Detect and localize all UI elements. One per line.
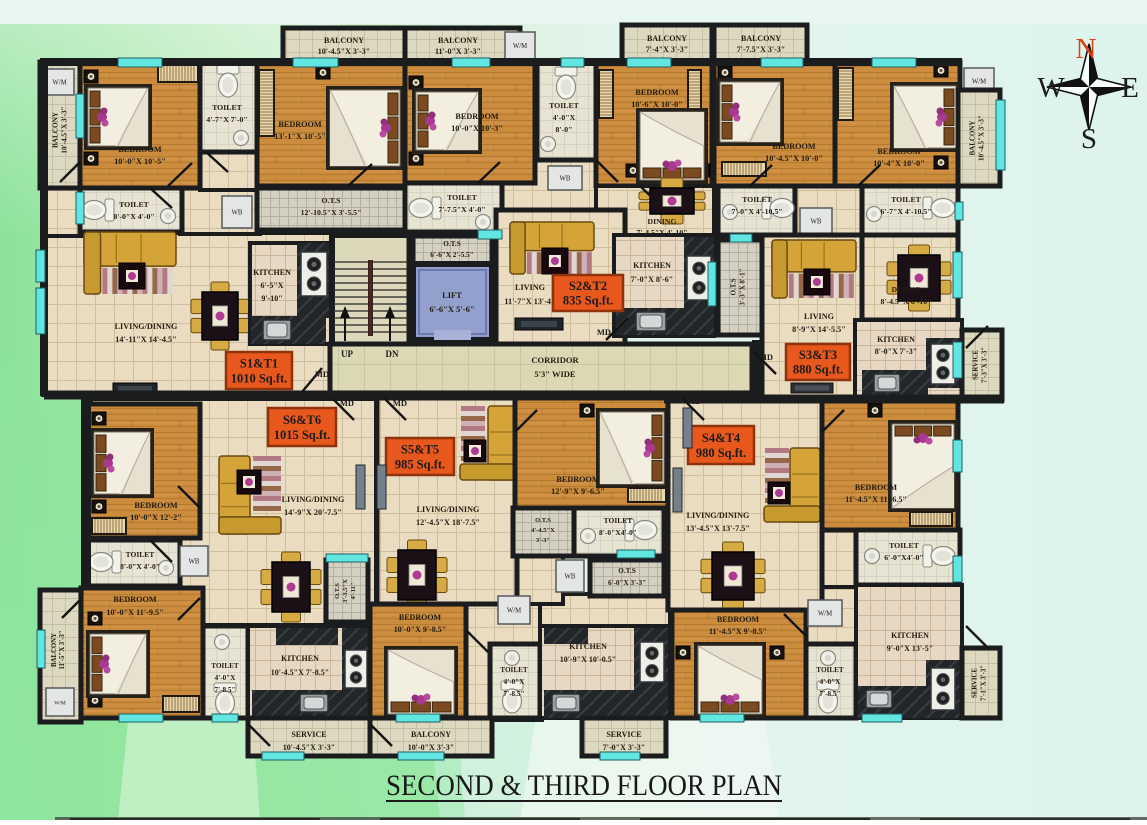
- svg-text:BEDROOM: BEDROOM: [118, 145, 161, 154]
- svg-text:6'-7"X 4'-10.5": 6'-7"X 4'-10.5": [880, 207, 931, 216]
- svg-text:8'-4.5"X 6'-10": 8'-4.5"X 6'-10": [880, 297, 931, 306]
- svg-text:KITCHEN: KITCHEN: [633, 261, 671, 270]
- svg-text:BEDROOM: BEDROOM: [717, 615, 760, 624]
- svg-text:BEDROOM: BEDROOM: [772, 142, 815, 151]
- svg-text:10'-4.5"X 3'-3": 10'-4.5"X 3'-3": [978, 115, 986, 161]
- svg-text:DINING: DINING: [891, 285, 920, 294]
- svg-text:S3&T3: S3&T3: [799, 348, 837, 362]
- svg-text:O.T.S: O.T.S: [322, 196, 341, 205]
- svg-text:TOILET: TOILET: [212, 103, 243, 112]
- svg-text:MD: MD: [597, 327, 611, 337]
- svg-text:W/M: W/M: [818, 611, 832, 618]
- svg-text:WB: WB: [232, 210, 243, 217]
- svg-text:W/M: W/M: [513, 43, 527, 50]
- svg-text:TOILET: TOILET: [211, 662, 239, 670]
- svg-text:6'-5"X: 6'-5"X: [260, 281, 283, 290]
- svg-text:MD: MD: [315, 369, 329, 379]
- svg-text:TOILET: TOILET: [889, 541, 920, 550]
- svg-text:10'-4.5"X 10'-0": 10'-4.5"X 10'-0": [765, 154, 823, 163]
- svg-text:7'-7.5"X 4'-0": 7'-7.5"X 4'-0": [438, 205, 485, 214]
- svg-text:TOILET: TOILET: [816, 666, 844, 674]
- svg-text:10'-4.5"X 3'-3": 10'-4.5"X 3'-3": [61, 106, 69, 153]
- svg-text:LIVING: LIVING: [804, 312, 835, 321]
- svg-text:6'-0"X 3'-3": 6'-0"X 3'-3": [608, 579, 646, 587]
- svg-text:7'-0"X 3'-3": 7'-0"X 3'-3": [603, 743, 645, 752]
- svg-text:W/M: W/M: [52, 80, 66, 87]
- svg-text:TOILET: TOILET: [742, 195, 773, 204]
- svg-text:N: N: [1076, 33, 1097, 65]
- svg-text:LIVING: LIVING: [515, 283, 546, 292]
- svg-text:SECOND & THIRD FLOOR PLAN: SECOND & THIRD FLOOR PLAN: [386, 769, 782, 802]
- svg-text:LIVING/DINING: LIVING/DINING: [115, 322, 178, 331]
- svg-text:O.T.S: O.T.S: [730, 278, 738, 295]
- svg-text:CORRIDOR: CORRIDOR: [531, 355, 579, 365]
- svg-text:4'-0"X: 4'-0"X: [820, 678, 842, 686]
- svg-text:BALCONY: BALCONY: [411, 730, 451, 739]
- svg-text:BEDROOM: BEDROOM: [134, 501, 177, 510]
- svg-text:10'-4.5"X 7'-8.5": 10'-4.5"X 7'-8.5": [271, 668, 329, 677]
- svg-text:8'-0": 8'-0": [556, 125, 573, 134]
- svg-text:1010 Sq.ft.: 1010 Sq.ft.: [231, 371, 288, 385]
- svg-text:KITCHEN: KITCHEN: [891, 631, 929, 640]
- svg-text:S4&T4: S4&T4: [702, 431, 741, 445]
- svg-text:11'-4.5"X 9'-8.5": 11'-4.5"X 9'-8.5": [709, 627, 767, 636]
- svg-text:10'-4.5"X 3'-3": 10'-4.5"X 3'-3": [283, 743, 335, 752]
- svg-text:8'-9"X 14'-5.5": 8'-9"X 14'-5.5": [792, 325, 846, 334]
- svg-text:SERVICE: SERVICE: [972, 668, 979, 698]
- svg-text:13'-4.5"X 13'-7.5": 13'-4.5"X 13'-7.5": [686, 524, 750, 533]
- svg-text:S2&T2: S2&T2: [569, 279, 607, 293]
- svg-text:MD: MD: [340, 398, 354, 408]
- svg-text:BALCONY: BALCONY: [52, 111, 60, 148]
- svg-text:7'-8.5": 7'-8.5": [820, 690, 841, 698]
- svg-text:13'-1"X 10'-5": 13'-1"X 10'-5": [274, 132, 326, 141]
- svg-text:TOILET: TOILET: [500, 666, 528, 674]
- svg-text:SERVICE: SERVICE: [606, 730, 641, 739]
- svg-text:8'-0"X 4'-0": 8'-0"X 4'-0": [113, 212, 154, 221]
- svg-text:7'-1"X 3'-3": 7'-1"X 3'-3": [981, 665, 988, 701]
- svg-text:4'-0"X: 4'-0"X: [504, 678, 526, 686]
- svg-text:6'-0"X4'-0": 6'-0"X4'-0": [884, 553, 923, 562]
- svg-text:11'-5"X 3'-3": 11'-5"X 3'-3": [59, 630, 66, 669]
- svg-text:8'-0"X 7'-3": 8'-0"X 7'-3": [875, 347, 917, 356]
- svg-text:7'-0"X 4'-10.5": 7'-0"X 4'-10.5": [731, 207, 782, 216]
- svg-text:BALCONY: BALCONY: [51, 633, 58, 667]
- svg-text:W/M: W/M: [972, 79, 986, 86]
- svg-text:O.T.S: O.T.S: [334, 583, 341, 599]
- svg-text:7'-4"X 3'-3": 7'-4"X 3'-3": [646, 45, 688, 54]
- svg-text:BALCONY: BALCONY: [741, 34, 781, 43]
- svg-text:8'-0"X4'-0": 8'-0"X4'-0": [599, 528, 637, 537]
- svg-text:10'-4"X 10'-0": 10'-4"X 10'-0": [873, 159, 925, 168]
- svg-text:S5&T5: S5&T5: [401, 443, 439, 457]
- svg-text:KITCHEN: KITCHEN: [253, 268, 291, 277]
- svg-text:KITCHEN: KITCHEN: [877, 335, 915, 344]
- svg-text:5'3" WIDE: 5'3" WIDE: [534, 369, 575, 379]
- svg-text:LIFT: LIFT: [442, 290, 462, 300]
- svg-text:BEDROOM: BEDROOM: [278, 120, 321, 129]
- svg-text:11'-4.5"X 11'-6.5": 11'-4.5"X 11'-6.5": [845, 495, 907, 504]
- svg-text:BEDROOM: BEDROOM: [399, 613, 442, 622]
- svg-text:W/M: W/M: [54, 701, 66, 707]
- svg-text:BEDROOM: BEDROOM: [455, 112, 498, 121]
- svg-text:10'-0"X 9'-8.5": 10'-0"X 9'-8.5": [394, 625, 446, 634]
- svg-text:BEDROOM: BEDROOM: [113, 595, 156, 604]
- svg-text:14'-11"X 14'-4.5": 14'-11"X 14'-4.5": [115, 335, 176, 344]
- svg-text:WB: WB: [565, 574, 576, 581]
- svg-text:10'-0"X 11'-9.5": 10'-0"X 11'-9.5": [106, 608, 163, 617]
- svg-text:10'-0"X 10'-3": 10'-0"X 10'-3": [451, 124, 503, 133]
- svg-text:BALCONY: BALCONY: [324, 36, 364, 45]
- svg-text:3'-3": 3'-3": [536, 537, 550, 544]
- svg-text:11'-0"X 3'-3": 11'-0"X 3'-3": [435, 47, 481, 56]
- svg-text:880 Sq.ft.: 880 Sq.ft.: [793, 363, 843, 377]
- svg-text:TOILET: TOILET: [126, 550, 155, 559]
- svg-text:SERVICE: SERVICE: [973, 350, 980, 380]
- svg-text:4'-0"X: 4'-0"X: [553, 113, 576, 122]
- svg-text:10'-0"X 3'-3": 10'-0"X 3'-3": [408, 743, 454, 752]
- svg-text:6'-6"X 2'-5.5": 6'-6"X 2'-5.5": [430, 251, 474, 259]
- svg-text:1015 Sq.ft.: 1015 Sq.ft.: [274, 428, 331, 442]
- svg-text:O.T.S: O.T.S: [443, 240, 460, 248]
- svg-text:LIVING/DINING: LIVING/DINING: [282, 495, 345, 504]
- svg-text:MD: MD: [393, 398, 407, 408]
- svg-text:12'-10.5"X 3'-5.5": 12'-10.5"X 3'-5.5": [301, 208, 362, 217]
- svg-text:O.T.S: O.T.S: [618, 567, 635, 575]
- svg-text:TOILET: TOILET: [549, 101, 580, 110]
- svg-text:980 Sq.ft.: 980 Sq.ft.: [696, 446, 746, 460]
- svg-text:E: E: [1121, 72, 1139, 104]
- svg-text:KITCHEN: KITCHEN: [281, 654, 319, 663]
- svg-text:14'-9"X 20'-7.5": 14'-9"X 20'-7.5": [284, 508, 342, 517]
- svg-text:10'-6"X 10'-0": 10'-6"X 10'-0": [631, 100, 683, 109]
- svg-text:W: W: [1037, 72, 1065, 104]
- svg-text:7'-7.5"X 3'-3": 7'-7.5"X 3'-3": [737, 45, 785, 54]
- svg-text:985 Sq.ft.: 985 Sq.ft.: [395, 457, 445, 471]
- svg-text:12'-9"X 9'-6.5": 12'-9"X 9'-6.5": [551, 487, 605, 496]
- svg-text:TOILET: TOILET: [119, 200, 150, 209]
- svg-text:BEDROOM: BEDROOM: [877, 147, 920, 156]
- svg-text:DN: DN: [386, 349, 399, 359]
- svg-text:10'-0"X 10'-5": 10'-0"X 10'-5": [114, 157, 166, 166]
- svg-text:MD: MD: [49, 388, 63, 398]
- svg-text:7'-8.5": 7'-8.5": [215, 686, 236, 694]
- svg-text:MD: MD: [687, 396, 701, 406]
- svg-text:3'-3"X 8'-1": 3'-3"X 8'-1": [739, 268, 747, 305]
- svg-text:10'-4.5"X 3'-3": 10'-4.5"X 3'-3": [318, 47, 370, 56]
- svg-text:9'-0"X 13'-5": 9'-0"X 13'-5": [887, 644, 933, 653]
- svg-text:4'-0"X: 4'-0"X: [215, 674, 237, 682]
- svg-text:BALCONY: BALCONY: [438, 36, 478, 45]
- svg-text:835 Sq.ft.: 835 Sq.ft.: [563, 294, 613, 308]
- svg-text:BALCONY: BALCONY: [647, 34, 687, 43]
- svg-text:BEDROOM: BEDROOM: [556, 475, 599, 484]
- svg-text:W/M: W/M: [507, 608, 521, 615]
- svg-text:10'-0"X 12'-2": 10'-0"X 12'-2": [130, 513, 182, 522]
- svg-text:7'-8.5": 7'-8.5": [504, 690, 525, 698]
- svg-text:S6&T6: S6&T6: [283, 413, 321, 427]
- svg-text:12'-4.5"X 18'-7.5": 12'-4.5"X 18'-7.5": [416, 518, 480, 527]
- svg-text:LIVING/DINING: LIVING/DINING: [687, 511, 750, 520]
- svg-text:10'-9"X 10'-0.5": 10'-9"X 10'-0.5": [560, 655, 616, 664]
- svg-text:O.T.S: O.T.S: [535, 517, 551, 524]
- svg-text:UP: UP: [341, 349, 353, 359]
- svg-text:BEDROOM: BEDROOM: [855, 483, 898, 492]
- svg-text:4'-11": 4'-11": [350, 583, 357, 600]
- svg-text:BALCONY: BALCONY: [969, 120, 977, 155]
- svg-text:WB: WB: [189, 559, 200, 566]
- svg-text:DINING: DINING: [647, 217, 676, 226]
- svg-text:3'-3.5"X: 3'-3.5"X: [342, 579, 349, 603]
- svg-text:KITCHEN: KITCHEN: [569, 642, 607, 651]
- svg-text:S1&T1: S1&T1: [240, 357, 278, 371]
- svg-text:BEDROOM: BEDROOM: [635, 88, 678, 97]
- svg-text:4'-7"X 7'-0": 4'-7"X 7'-0": [206, 115, 247, 124]
- svg-text:WB: WB: [560, 176, 571, 183]
- svg-text:4'-4.5"X: 4'-4.5"X: [531, 527, 555, 534]
- svg-text:WB: WB: [811, 219, 822, 226]
- svg-text:6'-6"X 5'-6": 6'-6"X 5'-6": [429, 304, 474, 314]
- svg-text:TOILET: TOILET: [891, 195, 922, 204]
- svg-text:TOILET: TOILET: [604, 516, 633, 525]
- svg-text:SERVICE: SERVICE: [291, 730, 326, 739]
- svg-text:S: S: [1081, 123, 1097, 155]
- svg-text:7'-3"X 3'-3": 7'-3"X 3'-3": [982, 347, 989, 383]
- svg-text:8'-0"X 4'-0": 8'-0"X 4'-0": [120, 562, 160, 571]
- svg-text:LIVING/DINING: LIVING/DINING: [417, 505, 480, 514]
- svg-text:7'-0"X 8'-6": 7'-0"X 8'-6": [631, 275, 673, 284]
- svg-text:11'-7"X 13'-4": 11'-7"X 13'-4": [504, 297, 555, 306]
- svg-text:9'-10": 9'-10": [261, 294, 282, 303]
- svg-text:TOILET: TOILET: [447, 193, 478, 202]
- svg-text:MD: MD: [759, 352, 773, 362]
